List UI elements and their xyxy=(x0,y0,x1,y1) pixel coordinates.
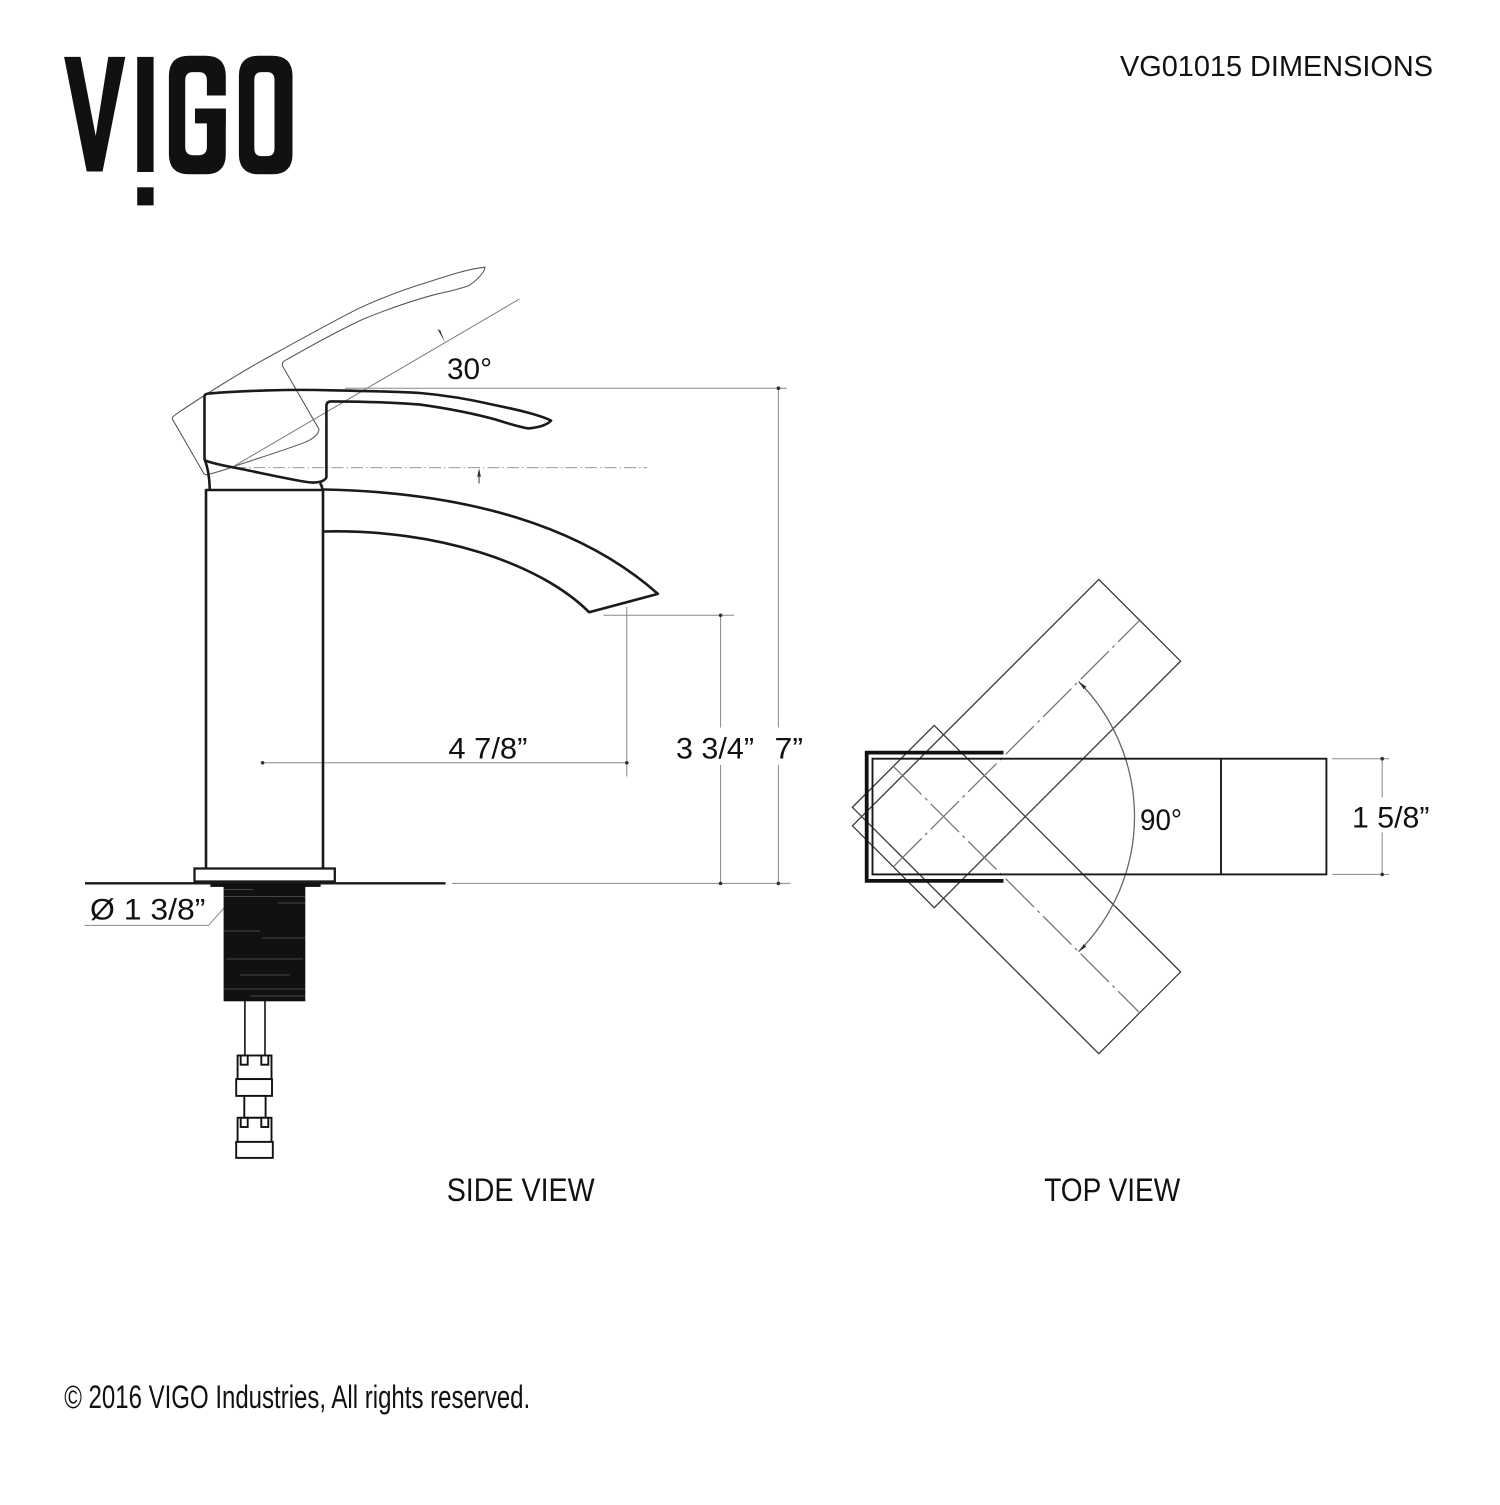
svg-text:3 3/4”: 3 3/4” xyxy=(676,733,754,766)
svg-text:© 2016 VIGO Industries, All ri: © 2016 VIGO Industries, All rights reser… xyxy=(64,1379,530,1415)
svg-text:1 5/8”: 1 5/8” xyxy=(1352,802,1429,835)
svg-text:4 7/8”: 4 7/8” xyxy=(448,733,527,766)
svg-text:90°: 90° xyxy=(1140,804,1182,837)
svg-text:Ø 1 3/8”: Ø 1 3/8” xyxy=(90,894,205,927)
svg-text:TOP VIEW: TOP VIEW xyxy=(1044,1172,1181,1208)
svg-text:30°: 30° xyxy=(447,353,492,386)
svg-text:7”: 7” xyxy=(775,733,804,766)
svg-text:SIDE VIEW: SIDE VIEW xyxy=(447,1172,596,1208)
svg-text:VG01015 DIMENSIONS: VG01015 DIMENSIONS xyxy=(1120,51,1433,83)
